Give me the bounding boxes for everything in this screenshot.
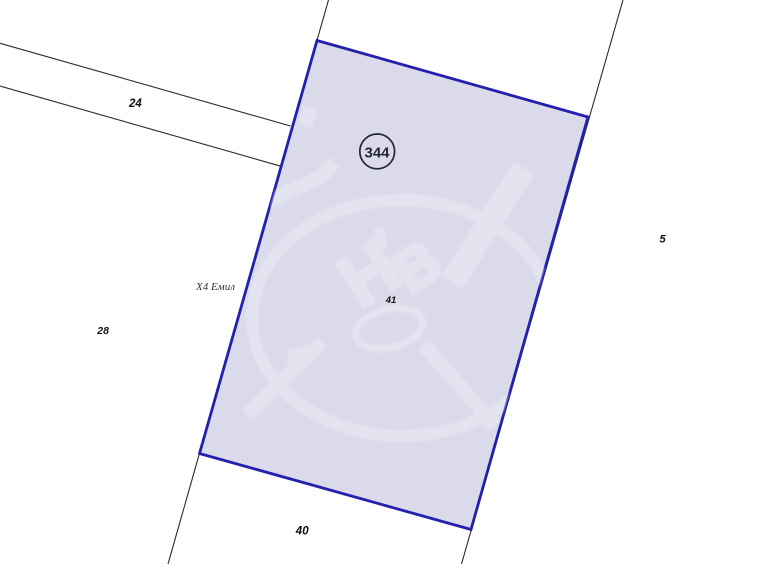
svg-text:40: 40 — [295, 525, 309, 537]
svg-text:41: 41 — [385, 295, 397, 306]
svg-text:344: 344 — [364, 144, 390, 161]
svg-text:Х4 Емил: Х4 Емил — [195, 281, 235, 293]
svg-text:24: 24 — [128, 98, 142, 110]
svg-text:5: 5 — [659, 234, 666, 246]
svg-text:28: 28 — [96, 325, 109, 337]
